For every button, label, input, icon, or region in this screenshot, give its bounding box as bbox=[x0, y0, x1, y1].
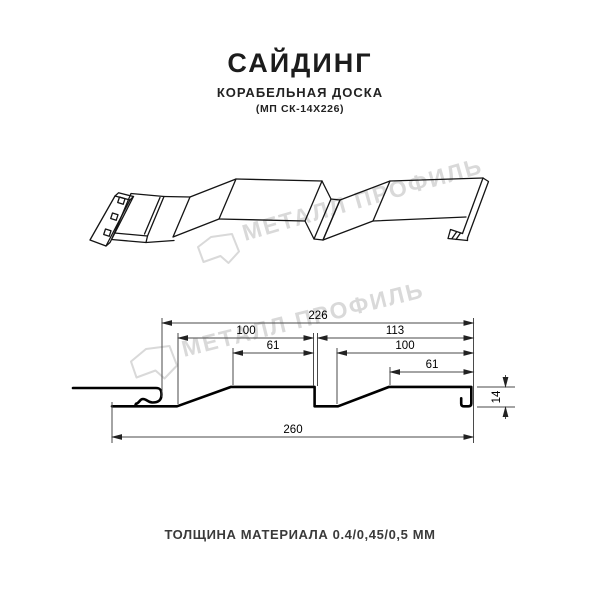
dim-right-113: 113 bbox=[386, 325, 404, 337]
material-thickness-label: ТОЛЩИНА МАТЕРИАЛА 0.4/0,45/0,5 ММ bbox=[0, 527, 600, 543]
dim-overall-width-226: 226 bbox=[308, 310, 327, 322]
watermark-lower: МЕТАЛЛ ПРОФИЛЬ bbox=[131, 276, 427, 378]
nail-hole bbox=[111, 213, 118, 220]
end-hem-hook bbox=[448, 230, 468, 241]
dim-overall-width-260: 260 bbox=[283, 424, 302, 436]
adjacent-panel-edge-and-lock bbox=[73, 388, 162, 406]
dim-right-100: 100 bbox=[395, 340, 414, 352]
watermark-logo-icon bbox=[131, 346, 177, 379]
slope-face bbox=[173, 179, 236, 237]
watermark-upper: МЕТАЛЛ ПРОФИЛЬ bbox=[198, 152, 486, 263]
watermark-logo-icon bbox=[198, 234, 239, 263]
cross-section-profile bbox=[73, 387, 471, 406]
dim-left-61: 61 bbox=[267, 340, 280, 352]
nail-hole bbox=[118, 197, 125, 204]
watermark-brand-text: МЕТАЛЛ ПРОФИЛЬ bbox=[179, 276, 427, 361]
watermark-brand-text: МЕТАЛЛ ПРОФИЛЬ bbox=[239, 152, 485, 246]
product-drawing-page: САЙДИНГ КОРАБЕЛЬНАЯ ДОСКА (МП СК-14Х226)… bbox=[0, 0, 600, 600]
panel-section-outline bbox=[112, 387, 471, 406]
nail-hole bbox=[104, 229, 111, 236]
dimension-lines bbox=[112, 318, 515, 443]
start-lock-fold bbox=[115, 194, 165, 237]
technical-drawing-canvas: МЕТАЛЛ ПРОФИЛЬ МЕТАЛЛ ПРОФИЛЬ bbox=[0, 0, 600, 600]
dim-height-14: 14 bbox=[491, 390, 503, 403]
extension-lines bbox=[112, 318, 515, 443]
dim-left-100: 100 bbox=[236, 325, 255, 337]
dim-right-61: 61 bbox=[426, 359, 439, 371]
